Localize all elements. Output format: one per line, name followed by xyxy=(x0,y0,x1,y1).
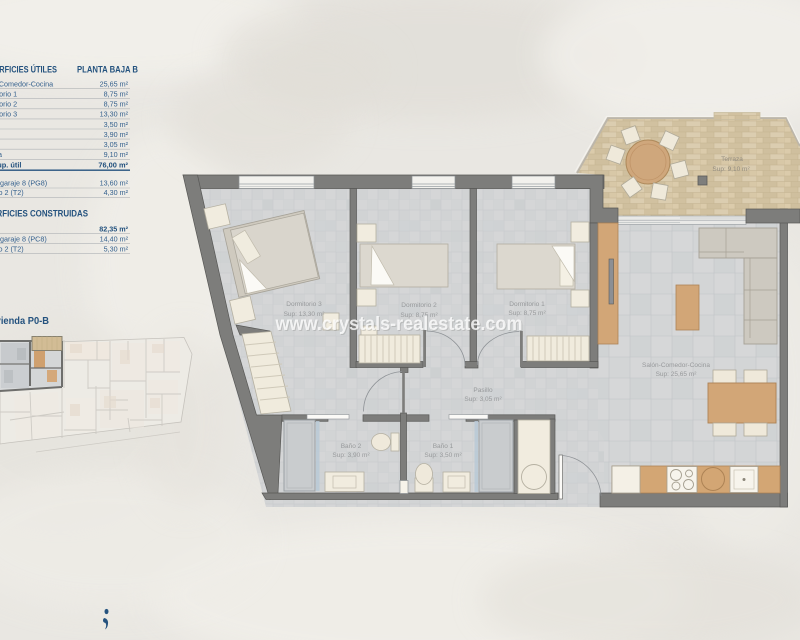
svg-text:13,30 m²: 13,30 m² xyxy=(100,110,129,119)
svg-text:Terraza: Terraza xyxy=(721,156,743,163)
svg-text:Dormitorio 3: Dormitorio 3 xyxy=(286,301,322,308)
svg-text:25,65 m²: 25,65 m² xyxy=(100,79,129,88)
svg-text:Sup: 3,05 m²: Sup: 3,05 m² xyxy=(464,396,502,403)
svg-text:SUPERFICIES CONSTRUIDAS: SUPERFICIES CONSTRUIDAS xyxy=(0,209,88,220)
svg-text:Baño 1: Baño 1 xyxy=(433,443,454,450)
svg-text:82,35 m²: 82,35 m² xyxy=(99,225,128,234)
svg-text:Trastero 2 (T2): Trastero 2 (T2) xyxy=(0,188,24,197)
svg-text:Sup: 25,65 m²: Sup: 25,65 m² xyxy=(656,371,698,378)
svg-text:3,50 m²: 3,50 m² xyxy=(104,120,129,129)
svg-text:www.crystals-realestate.com: www.crystals-realestate.com xyxy=(275,314,523,335)
svg-text:Pasillo: Pasillo xyxy=(473,387,493,394)
svg-text:Terraza: Terraza xyxy=(0,150,2,159)
svg-text:Dormitorio 1: Dormitorio 1 xyxy=(0,90,17,99)
svg-text:5,30 m²: 5,30 m² xyxy=(104,244,129,253)
svg-text:PLANTA BAJA B: PLANTA BAJA B xyxy=(77,64,138,75)
svg-text:Plaza garaje 8 (PC8): Plaza garaje 8 (PC8) xyxy=(0,234,47,243)
svg-text:Salón-Comedor-Cocina: Salón-Comedor-Cocina xyxy=(642,362,710,369)
svg-text:SUPERFICIES ÚTILES: SUPERFICIES ÚTILES xyxy=(0,63,57,75)
svg-text:Trastero 2 (T2): Trastero 2 (T2) xyxy=(0,244,24,253)
svg-text:Sup: 3,50 m²: Sup: 3,50 m² xyxy=(424,452,462,459)
svg-text:14,40 m²: 14,40 m² xyxy=(100,234,129,243)
svg-text:Dormitorio 3: Dormitorio 3 xyxy=(0,110,17,119)
svg-text:Dormitorio 1: Dormitorio 1 xyxy=(509,301,545,308)
svg-text:Total sup. útil: Total sup. útil xyxy=(0,161,22,170)
svg-text:8,75 m²: 8,75 m² xyxy=(104,100,129,109)
svg-text:Dormitorio 2: Dormitorio 2 xyxy=(401,302,437,309)
svg-text:9,10 m²: 9,10 m² xyxy=(104,150,129,159)
svg-text:Dormitorio 2: Dormitorio 2 xyxy=(0,100,17,109)
svg-text:Salón-Comedor-Cocina: Salón-Comedor-Cocina xyxy=(0,79,53,88)
svg-text:Sup: 3,90 m²: Sup: 3,90 m² xyxy=(332,452,370,459)
svg-text:Sup: 9,10 m²: Sup: 9,10 m² xyxy=(712,166,750,173)
svg-text:76,00 m²: 76,00 m² xyxy=(98,161,128,170)
svg-text:3,90 m²: 3,90 m² xyxy=(104,130,129,139)
svg-text:3,05 m²: 3,05 m² xyxy=(104,140,129,149)
svg-text:8,75 m²: 8,75 m² xyxy=(104,90,129,99)
svg-text:13,60 m²: 13,60 m² xyxy=(100,179,129,188)
svg-text:Baño 2: Baño 2 xyxy=(341,443,362,450)
svg-text:4,30 m²: 4,30 m² xyxy=(104,188,129,197)
svg-text:Vivienda P0-B: Vivienda P0-B xyxy=(0,315,49,327)
svg-text:Plaza garaje 8 (PG8): Plaza garaje 8 (PG8) xyxy=(0,179,47,188)
